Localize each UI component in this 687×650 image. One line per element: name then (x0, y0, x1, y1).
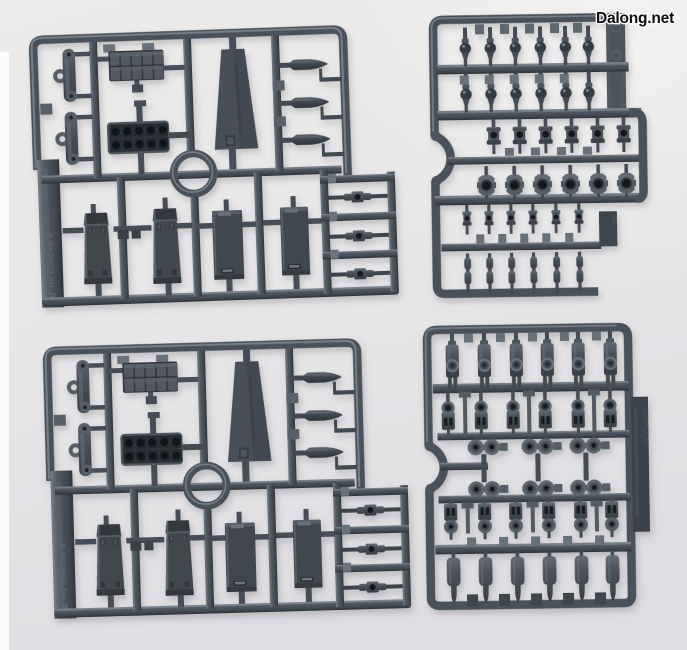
svg-text:Dalong.net: Dalong.net (596, 10, 674, 27)
svg-text:A2: A2 (610, 215, 617, 224)
svg-text:GUNPLA A1: GUNPLA A1 (641, 407, 649, 446)
